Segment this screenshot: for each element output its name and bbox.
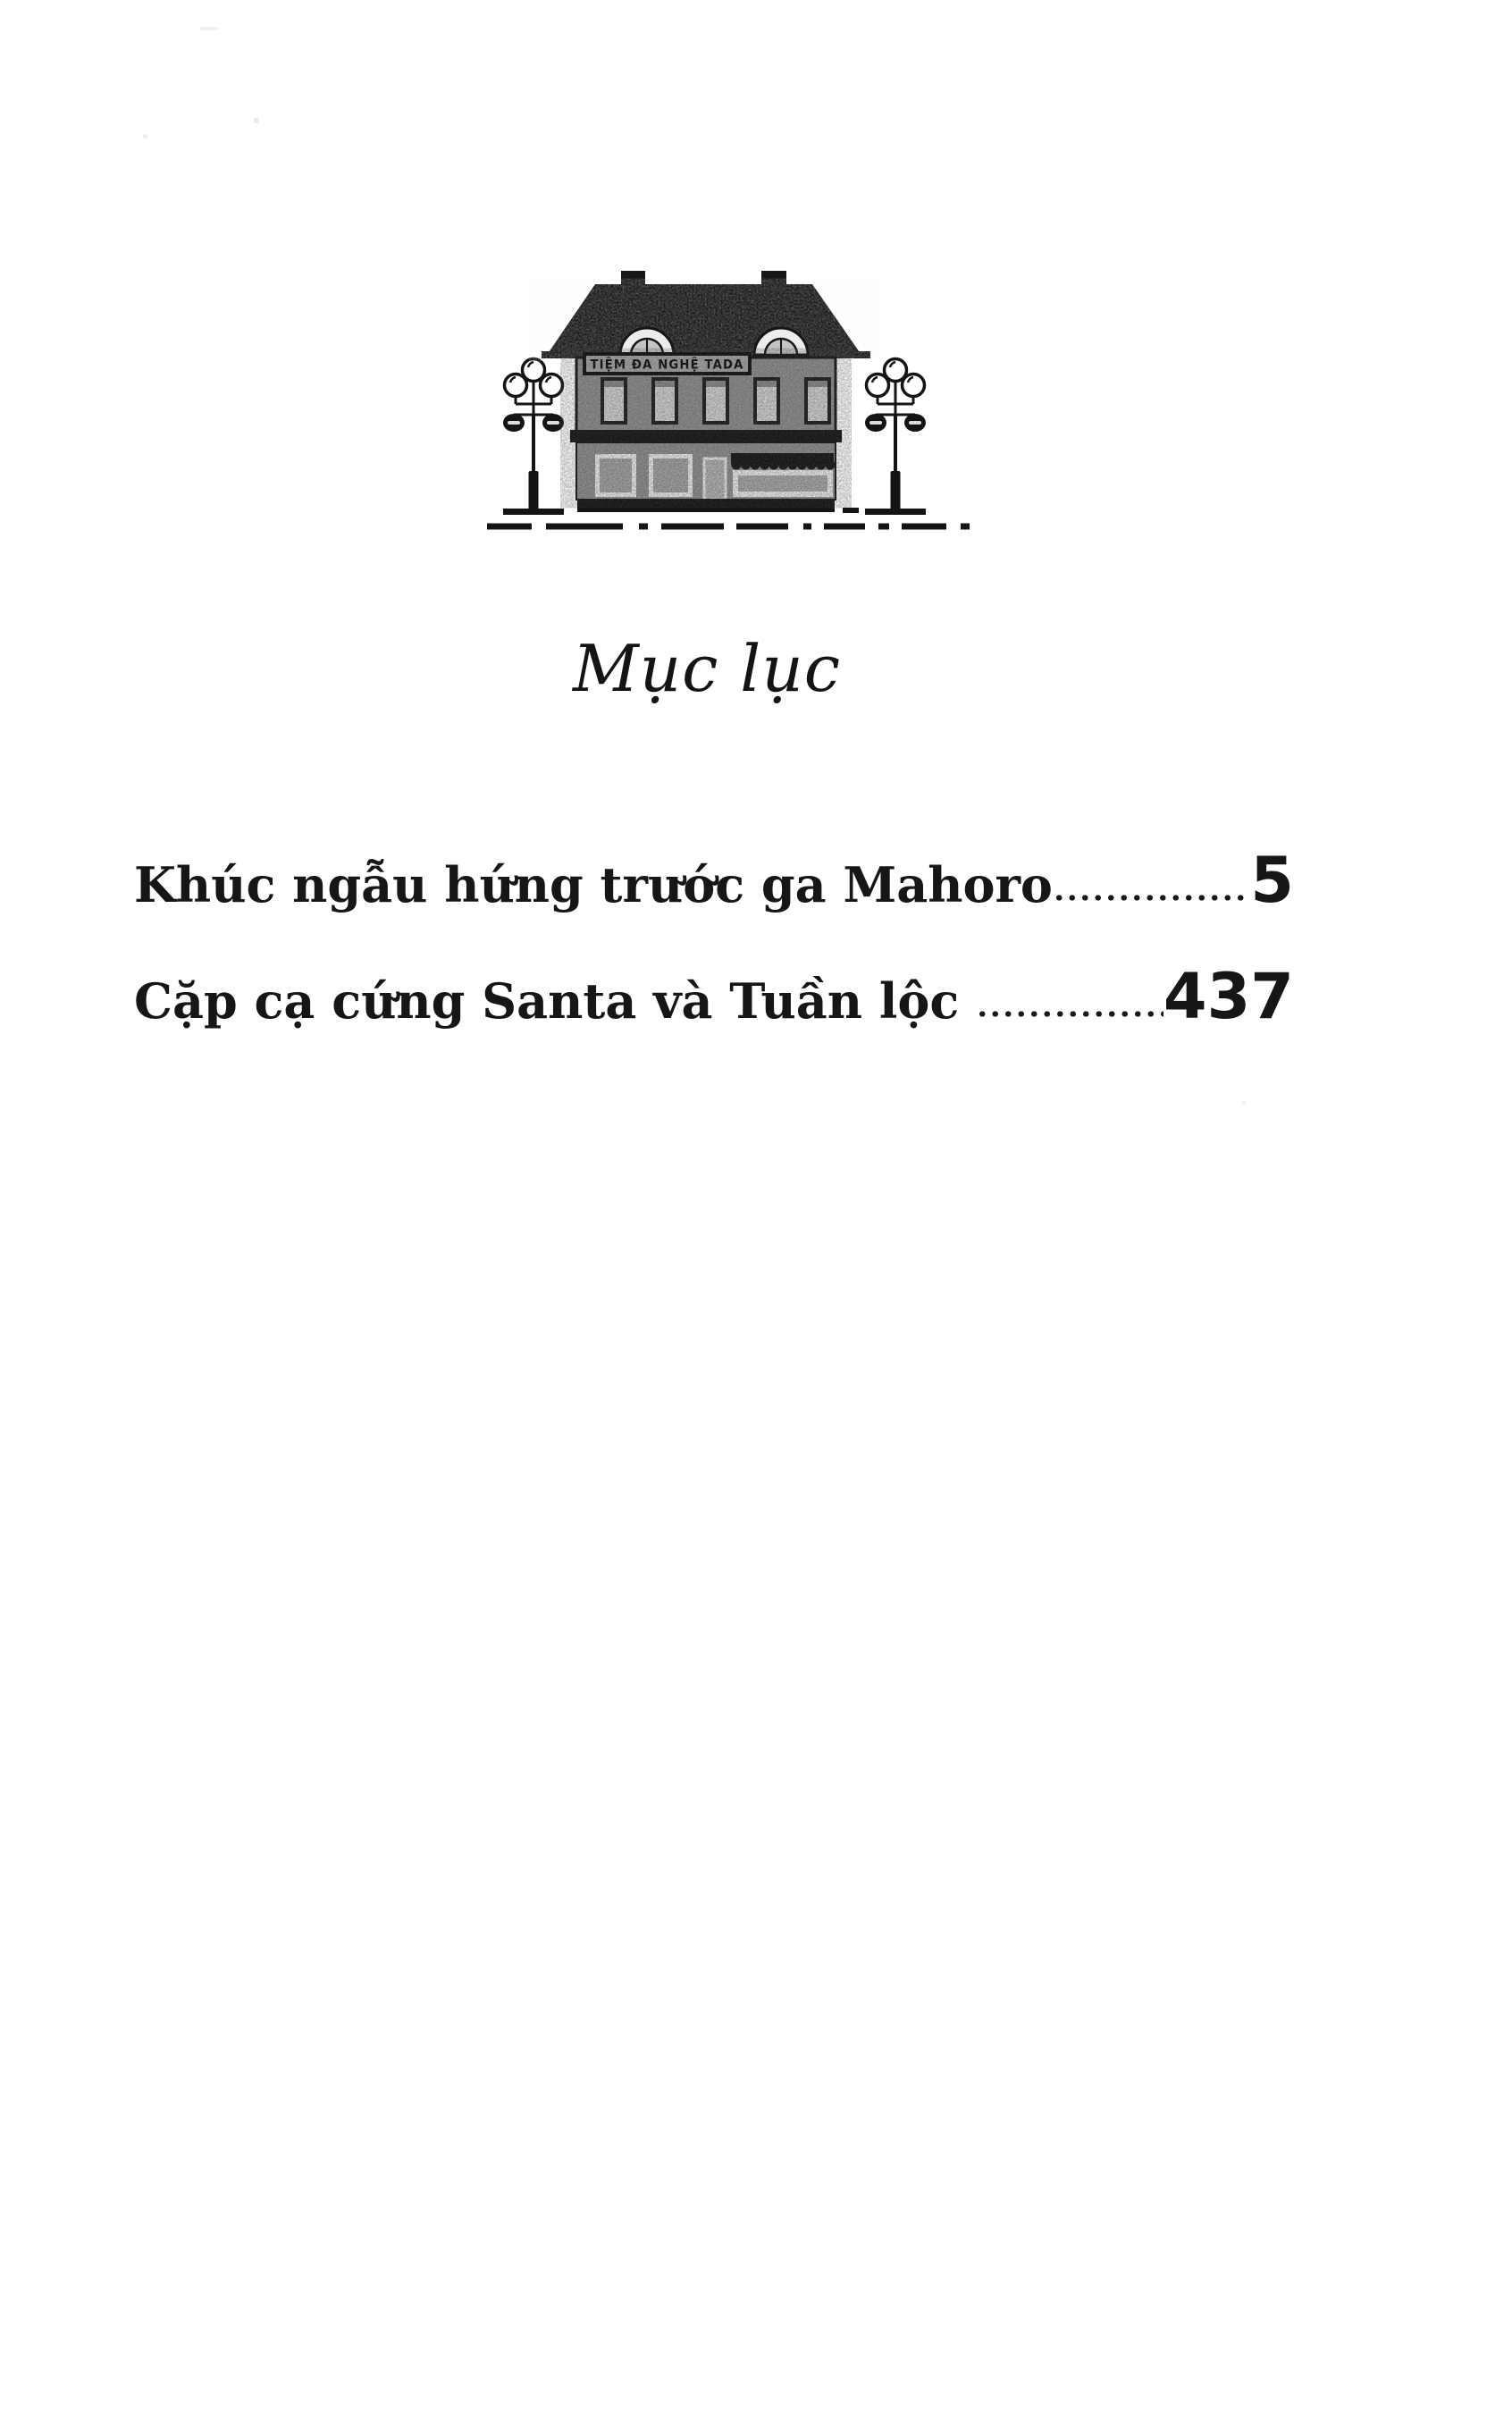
scan-speck (198, 27, 218, 30)
toc-entry-page: 437 (1163, 965, 1294, 1028)
book-page: TIỆM ĐA NGHỆ TADA (0, 0, 1512, 2431)
scan-speck (1242, 1101, 1247, 1106)
toc-entry: Cặp cạ cứng Santa và Tuần lộc 437 (134, 965, 1294, 1044)
table-of-contents: Khúc ngẫu hứng trước ga Mahoro 5 Cặp cạ … (134, 849, 1294, 1081)
toc-entry-label: Cặp cạ cứng Santa và Tuần lộc (134, 977, 976, 1025)
scan-speck (254, 118, 259, 123)
street-lamp-right (865, 359, 926, 516)
ground-dash (843, 508, 859, 513)
dot-leader (1053, 894, 1250, 902)
shop-building: TIỆM ĐA NGHỆ TADA (542, 271, 870, 512)
toc-entry: Khúc ngẫu hứng trước ga Mahoro 5 (134, 849, 1294, 928)
page-title: Mục lục (0, 636, 1414, 701)
toc-entry-page: 5 (1250, 849, 1294, 912)
scan-speck (143, 134, 147, 139)
base-band (577, 499, 835, 512)
dot-leader (976, 1010, 1163, 1018)
storefront-illustration: TIỆM ĐA NGHỆ TADA (478, 261, 979, 558)
street-lamp-left (503, 359, 564, 516)
toc-entry-label: Khúc ngẫu hứng trước ga Mahoro (134, 861, 1053, 909)
